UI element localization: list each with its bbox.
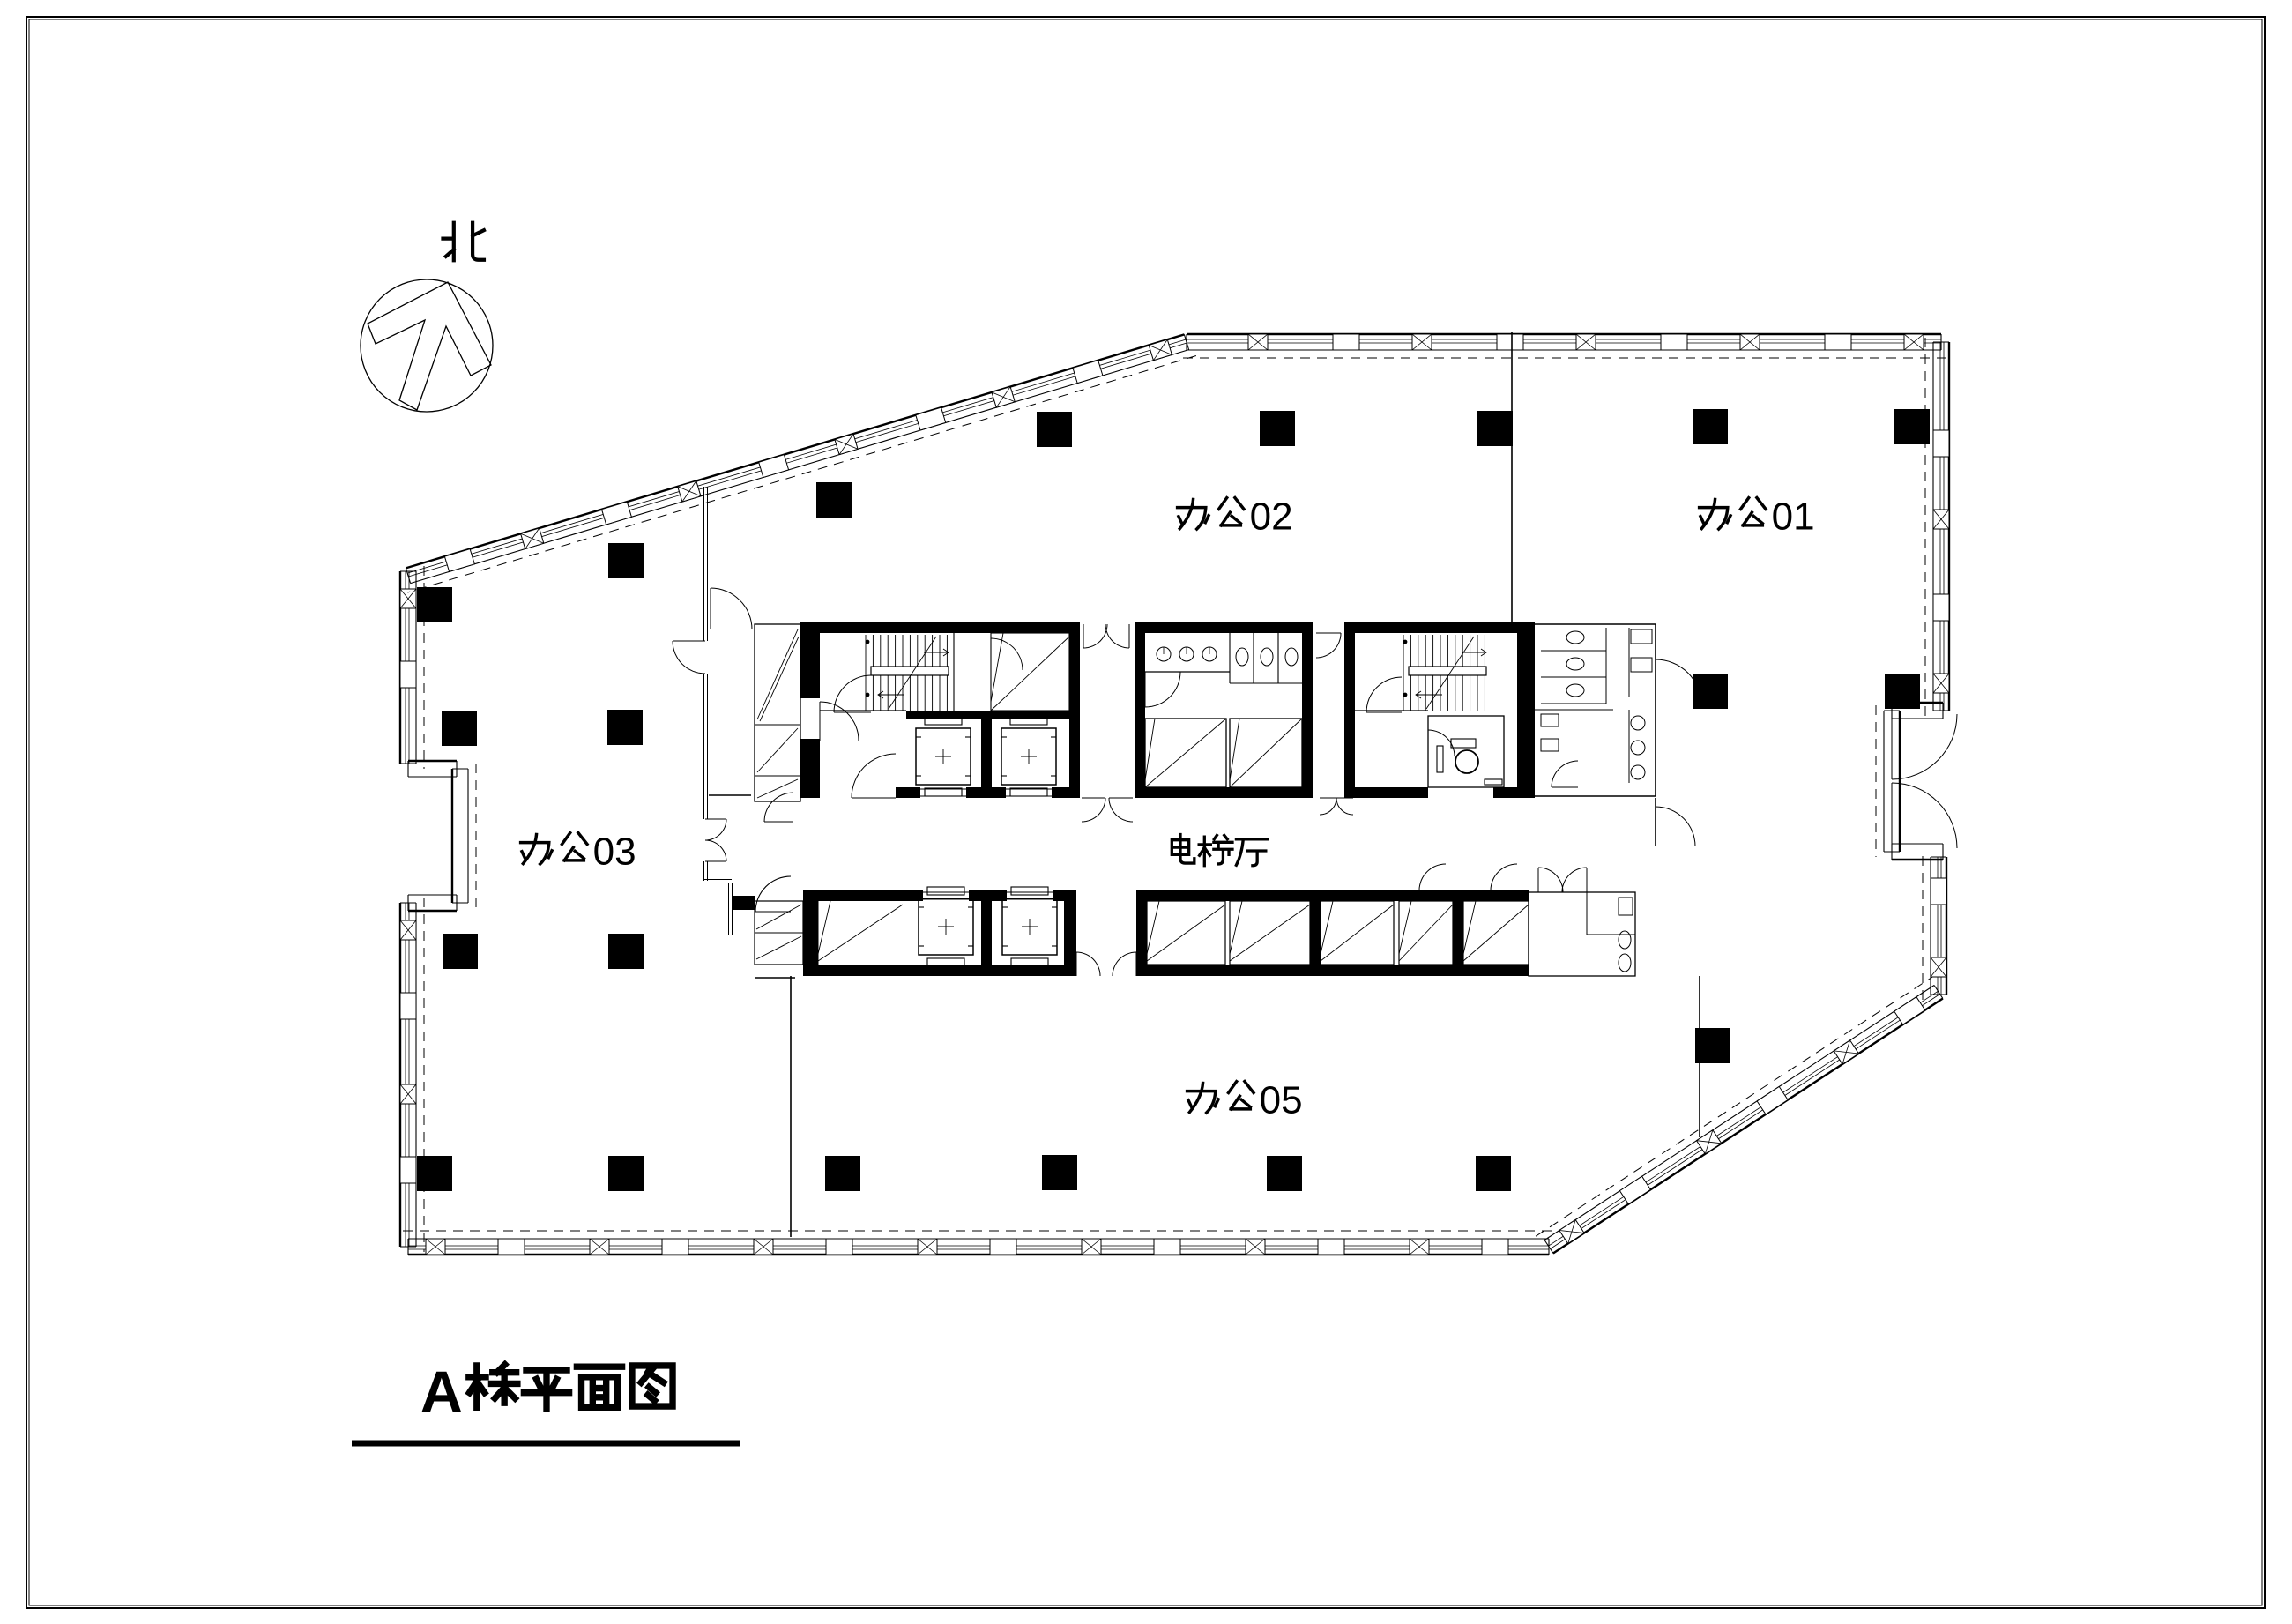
svg-text:05: 05 — [1260, 1079, 1303, 1122]
svg-text:02: 02 — [1250, 495, 1293, 539]
svg-text:01: 01 — [1772, 495, 1815, 539]
svg-text:A: A — [420, 1359, 463, 1424]
svg-text:03: 03 — [593, 831, 636, 874]
